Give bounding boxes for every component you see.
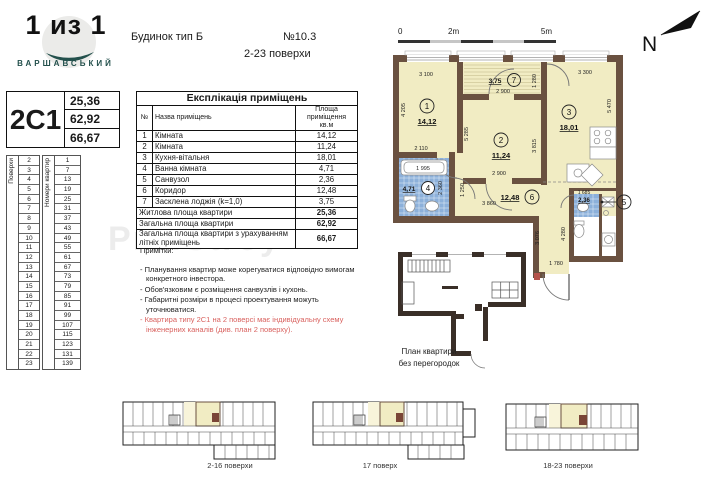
floor-cell: 21	[19, 340, 39, 350]
apartment-number-cell: 99	[55, 311, 80, 321]
room-number-cell: 5	[137, 175, 153, 186]
apartment-number-cell: 123	[55, 340, 80, 350]
dim-label: 1 685	[578, 190, 591, 196]
dim-label: 3 300	[578, 70, 592, 76]
col-header-name: Назва приміщень	[153, 106, 296, 131]
room-area-cell: 18,01	[296, 153, 358, 164]
outline-block	[475, 304, 482, 311]
apartment-number-cell: 7	[55, 166, 80, 176]
summary-row: Загальна площа квартири 62,92	[137, 219, 358, 230]
floor-cell: 5	[19, 185, 39, 195]
floor-cell: 7	[19, 204, 39, 214]
mini-plan-2-16	[122, 401, 284, 461]
floor-cell: 12	[19, 253, 39, 263]
mini-plan-18-23	[505, 403, 645, 459]
room-area-cell: 4,71	[296, 164, 358, 175]
dim-label: 1 280	[532, 74, 538, 88]
room-name-cell: Кімната	[153, 142, 296, 153]
floor-plan-sheet: ProfStroy 1 из 1 ВАРШАВСЬКИЙ Будинок тип…	[0, 0, 710, 498]
dim-label: 2 110	[414, 146, 427, 152]
room-area-cell: 3,75	[296, 197, 358, 208]
scale-5m-label: 5m	[541, 27, 552, 36]
floors-table-label: Поверхи	[7, 156, 19, 369]
apartment-number-cell: 43	[55, 224, 80, 234]
room-name-cell: Коридор	[153, 186, 296, 197]
apartment-number-cell: 1	[55, 156, 80, 166]
apartment-number-cell: 61	[55, 253, 80, 263]
room-number-cell: 6	[137, 186, 153, 197]
apartment-number-cell: 19	[55, 185, 80, 195]
apartment-number-cell: 107	[55, 321, 80, 331]
floors-list: 234567891011121314151617181920212223	[19, 156, 39, 369]
room-4-number: 4	[426, 184, 431, 193]
room-number-cell: 3	[137, 153, 153, 164]
floor-cell: 20	[19, 330, 39, 340]
apartment-number-cell: 85	[55, 292, 80, 302]
room-area-cell: 2,36	[296, 175, 358, 186]
explication-row: 6 Коридор 12,48	[137, 186, 358, 197]
floor-cell: 18	[19, 311, 39, 321]
floor-cell: 15	[19, 282, 39, 292]
apartment-numbers-list: 1713192531374349556167737985919910711512…	[55, 156, 80, 369]
apartment-numbers-label: Номери квартир	[43, 156, 55, 369]
outline-walls	[398, 252, 526, 356]
note-item: - Габаритні розміри в процесі проектуван…	[140, 295, 368, 314]
floor-cell: 3	[19, 166, 39, 176]
room-4-area: 4,71	[403, 186, 416, 193]
scale-2m-label: 2m	[448, 27, 459, 36]
dim-label: 4 205	[401, 103, 407, 117]
apartment-number-cell: 31	[55, 204, 80, 214]
room-area-cell: 12,48	[296, 186, 358, 197]
dim-label: 3 815	[532, 139, 538, 153]
apartment-numbers-table: Номери квартир 1713192531374349556167737…	[42, 155, 81, 370]
floor-cell: 2	[19, 156, 39, 166]
scale-bar-segments	[398, 40, 556, 43]
dim-label: 2 360	[438, 181, 444, 195]
dim-label: 2 900	[496, 89, 510, 95]
room-2-area: 11,24	[492, 151, 511, 160]
dim-label: 2 900	[492, 171, 506, 177]
apartment-number-cell: 91	[55, 301, 80, 311]
floor-cell: 19	[19, 321, 39, 331]
explication-row: 1 Кімната 14,12	[137, 131, 358, 142]
room-3-number: 3	[567, 108, 572, 117]
dim-label: 1 250	[460, 183, 466, 197]
room-7-area: 3,75	[489, 78, 502, 85]
room-name-cell: Засклена лоджія (k=1,0)	[153, 197, 296, 208]
dim-label: 1 780	[549, 261, 563, 267]
room-2-number: 2	[499, 136, 504, 145]
total-area-value: 62,92	[65, 110, 119, 128]
dim-label: 3 076	[535, 231, 541, 245]
floors-range-label: 2-23 поверхи	[244, 48, 311, 60]
apartment-number-cell: 73	[55, 272, 80, 282]
note-item: - Планування квартир може корегуватися в…	[140, 265, 368, 284]
apartment-number-cell: 25	[55, 195, 80, 205]
floor-cell: 11	[19, 243, 39, 253]
floor-cell: 13	[19, 263, 39, 273]
room-number-cell: 4	[137, 164, 153, 175]
room-1-number: 1	[425, 102, 430, 111]
note-item: - Обов'язковим є розміщення санвузлів і …	[140, 285, 368, 295]
summary-value-cell: 25,36	[296, 208, 358, 219]
summary-label-cell: Загальна площа квартири	[137, 219, 296, 230]
floor-cell: 22	[19, 350, 39, 360]
apartment-number-cell: 79	[55, 282, 80, 292]
explication-row: 5 Санвузол 2,36	[137, 175, 358, 186]
apartment-number-cell: 131	[55, 350, 80, 360]
explication-row: 4 Ванна кімната 4,71	[137, 164, 358, 175]
floor-cell: 8	[19, 214, 39, 224]
scale-0-label: 0	[398, 27, 402, 36]
floor-cell: 14	[19, 272, 39, 282]
room-5-area: 2,36	[578, 198, 590, 204]
apartment-number-cell: 37	[55, 214, 80, 224]
apartment-number-cell: 139	[55, 359, 80, 369]
summary-label-cell: Житлова площа квартири	[137, 208, 296, 219]
explication-table: Експлікація приміщень № Назва приміщень …	[136, 91, 358, 249]
mini-plan-label: 17 поверх	[300, 461, 460, 470]
dim-label: 5 285	[464, 127, 470, 141]
floor-cell: 17	[19, 301, 39, 311]
apartment-number-cell: 67	[55, 263, 80, 273]
mini-plan-17	[312, 401, 476, 461]
floor-cell: 6	[19, 195, 39, 205]
apartment-number-cell: 49	[55, 234, 80, 244]
room-number-cell: 2	[137, 142, 153, 153]
room-6-number: 6	[530, 193, 535, 202]
floor-cell: 23	[19, 359, 39, 369]
floor-cell: 16	[19, 292, 39, 302]
summary-value-cell: 62,92	[296, 219, 358, 230]
dim-label: 4 280	[561, 227, 567, 241]
plan-number-label: №10.3	[283, 31, 316, 43]
logo-title: 1 из 1	[10, 10, 122, 41]
floor-cell: 9	[19, 224, 39, 234]
dim-label: 3 100	[419, 72, 433, 78]
room-name-cell: Ванна кімната	[153, 164, 296, 175]
room-5-number: 5	[622, 198, 627, 207]
mini-plan-label: 18-23 поверхи	[498, 461, 638, 470]
room-area-cell: 11,24	[296, 142, 358, 153]
room-name-cell: Кухня-вітальня	[153, 153, 296, 164]
apartment-number-cell: 13	[55, 175, 80, 185]
outline-plan-label: План квартири без перегородок	[384, 346, 474, 370]
room-name-cell: Кімната	[153, 131, 296, 142]
mini-plan-label: 2-16 поверхи	[150, 461, 310, 470]
outline-block	[456, 314, 464, 319]
scale-bar: 0 2m 5m	[398, 27, 556, 47]
explication-title: Експлікація приміщень	[137, 92, 358, 106]
floors-table: Поверхи 23456789101112131415161718192021…	[6, 155, 40, 370]
notes-list: - Планування квартир може корегуватися в…	[140, 265, 368, 315]
floor-cell: 4	[19, 175, 39, 185]
outline-bar	[442, 286, 458, 289]
explication-row: 7 Засклена лоджія (k=1,0) 3,75	[137, 197, 358, 208]
logo: 1 из 1 ВАРШАВСЬКИЙ	[8, 6, 123, 72]
room-3-area: 18,01	[560, 123, 579, 132]
apartment-card: 2С1 25,36 62,92 66,67	[6, 91, 120, 148]
total-area-summer-value: 66,67	[65, 129, 119, 147]
notes-title: Примітки:	[140, 246, 368, 256]
apartment-code: 2С1	[7, 92, 65, 147]
summary-row: Житлова площа квартири 25,36	[137, 208, 358, 219]
room-number-cell: 7	[137, 197, 153, 208]
floor-cell: 10	[19, 234, 39, 244]
room-6-area: 12,48	[501, 193, 520, 202]
col-header-num: №	[137, 106, 153, 131]
note-item-highlighted: - Квартира типу 2С1 на 2 поверсі має інд…	[140, 315, 368, 334]
living-area-value: 25,36	[65, 92, 119, 110]
room-7-number: 7	[512, 76, 517, 85]
building-type-label: Будинок тип Б	[131, 31, 203, 43]
room-name-cell: Санвузол	[153, 175, 296, 186]
notes: Примітки: - Планування квартир може коре…	[140, 246, 368, 335]
room-1-area: 14,12	[418, 117, 437, 126]
apartment-number-cell: 115	[55, 330, 80, 340]
dim-label: 1 995	[416, 166, 430, 172]
dim-label: 5 470	[607, 99, 613, 113]
logo-subtitle: ВАРШАВСЬКИЙ	[8, 59, 123, 68]
explication-row: 3 Кухня-вітальня 18,01	[137, 153, 358, 164]
room-area-cell: 14,12	[296, 131, 358, 142]
room-number-cell: 1	[137, 131, 153, 142]
explication-row: 2 Кімната 11,24	[137, 142, 358, 153]
apartment-number-cell: 55	[55, 243, 80, 253]
dim-label: 3 860	[482, 201, 496, 207]
col-header-area: Площа приміщення кв.м	[296, 106, 358, 131]
